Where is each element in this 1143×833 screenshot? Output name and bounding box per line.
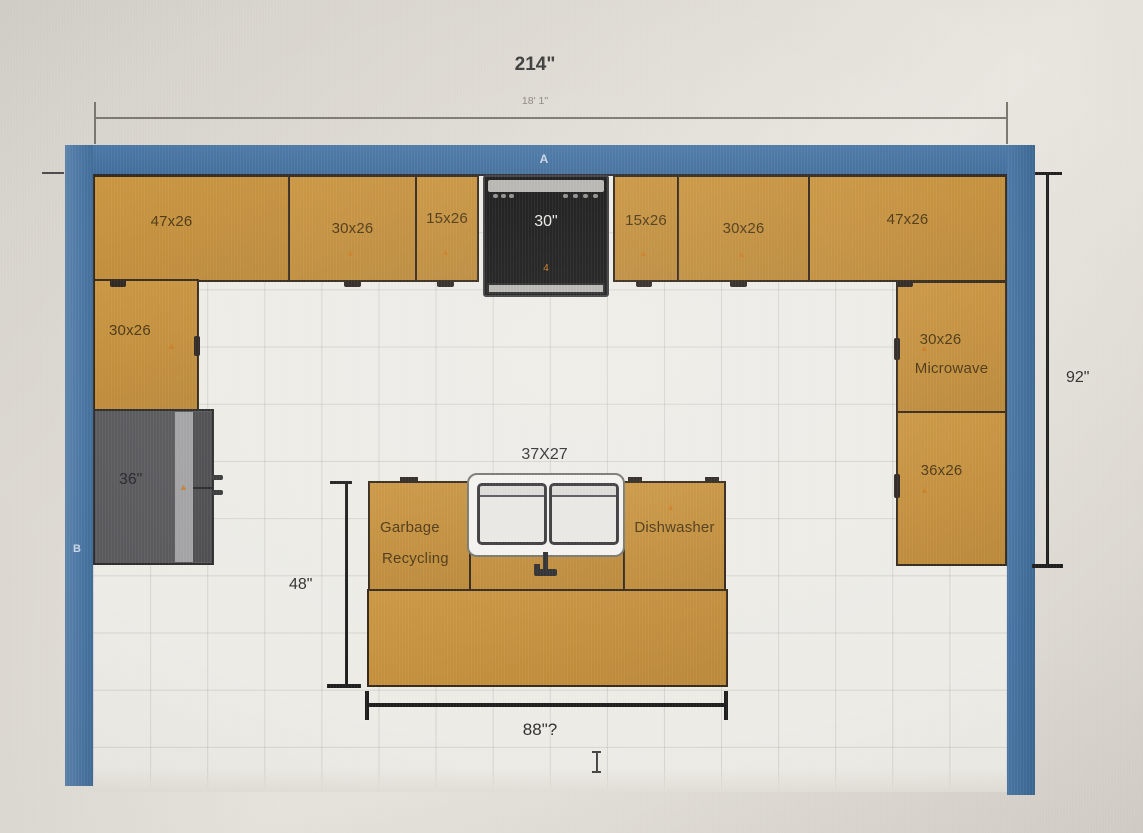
cabinet-label: 47x26 xyxy=(151,213,193,230)
dim-island-width: 88"? xyxy=(500,720,580,740)
fridge-handle xyxy=(212,490,223,495)
range-control-panel xyxy=(488,180,604,192)
door-handle xyxy=(705,477,719,482)
island-garbage-recycling-cabinet[interactable]: Garbage Recycling xyxy=(368,481,471,591)
fridge-width-label: 36" xyxy=(119,471,142,489)
fridge-door-split xyxy=(193,487,212,489)
cabinet-label: 15x26 xyxy=(426,210,468,227)
dim-tick-top-right xyxy=(1006,102,1008,144)
range-30in[interactable]: 30" 4 xyxy=(483,175,609,297)
door-handle xyxy=(894,338,900,360)
item-marker: ▲ xyxy=(179,483,186,492)
sink-rim xyxy=(552,486,616,497)
range-knob-icon xyxy=(509,194,514,198)
garbage-label: Garbage xyxy=(380,519,440,536)
dim-tick-right-top xyxy=(1035,172,1062,175)
refrigerator[interactable]: 36" xyxy=(93,409,214,565)
item-marker: ▲ xyxy=(441,248,448,257)
door-handle xyxy=(400,477,418,483)
wall-right[interactable] xyxy=(1007,145,1035,795)
cabinet-label: 30x26 xyxy=(109,322,151,339)
cabinet-label: 47x26 xyxy=(887,211,929,228)
dim-tick-island-depth-top xyxy=(330,481,352,484)
dim-tick-right-bottom xyxy=(1032,564,1063,568)
fridge-handle xyxy=(212,475,223,480)
range-size-label: 30" xyxy=(485,213,607,231)
microwave-label: Microwave xyxy=(915,360,988,377)
range-knob-icon xyxy=(493,194,498,198)
range-knob-icon xyxy=(583,194,588,198)
sink-basin-left xyxy=(477,483,547,545)
door-handle xyxy=(437,281,454,287)
dim-sink-size: 37X27 xyxy=(487,446,602,464)
item-marker: ▲ xyxy=(920,344,927,353)
cabinet-label: 30x26 xyxy=(723,220,765,237)
door-handle xyxy=(636,281,652,287)
text-cursor-icon xyxy=(590,751,603,773)
door-handle xyxy=(730,281,747,287)
item-marker: ▲ xyxy=(666,503,673,512)
door-handle xyxy=(110,281,126,287)
cabinet-top-15x26-right[interactable]: 15x26 xyxy=(613,175,679,282)
cabinet-top-15x26-left[interactable]: 15x26 xyxy=(415,175,479,282)
kitchen-plan-canvas: A B 214" 18' 1" 92" 47x26 30x26 15x26 15… xyxy=(0,0,1143,833)
cabinet-top-47x26-left[interactable]: 47x26 xyxy=(93,175,290,282)
wall-label-a: A xyxy=(536,152,552,166)
cabinet-label: 30x26 xyxy=(332,220,374,237)
dim-line-top xyxy=(95,117,1008,119)
cabinet-right-36x26[interactable]: 36x26 xyxy=(896,411,1007,566)
door-handle xyxy=(894,474,900,498)
wall-left[interactable] xyxy=(65,145,93,786)
cabinet-top-47x26-right[interactable]: 47x26 xyxy=(808,175,1007,282)
dim-line-right xyxy=(1046,174,1049,567)
range-item-number: 4 xyxy=(485,263,607,274)
island-dishwasher[interactable]: Dishwasher xyxy=(623,481,726,591)
item-marker: ▲ xyxy=(167,342,174,351)
dishwasher-label: Dishwasher xyxy=(634,519,714,536)
dim-tick-island-depth-bottom xyxy=(327,684,361,688)
dim-tick-top-left xyxy=(94,102,96,144)
cabinet-label: 36x26 xyxy=(921,462,963,479)
dim-tick-island-width-left xyxy=(365,691,369,720)
door-handle xyxy=(194,336,200,356)
item-marker: ▲ xyxy=(639,249,646,258)
range-knob-icon xyxy=(563,194,568,198)
kitchen-sink[interactable] xyxy=(467,473,625,557)
range-knob-icon xyxy=(501,194,506,198)
cabinet-top-30x26-right[interactable]: 30x26 xyxy=(677,175,810,282)
dim-right-depth: 92" xyxy=(1066,369,1089,387)
cabinet-top-30x26-left[interactable]: 30x26 xyxy=(288,175,417,282)
item-marker: ▲ xyxy=(920,486,927,495)
dim-tick-island-width-right xyxy=(724,691,728,720)
item-marker: ▲ xyxy=(346,249,353,258)
dim-overall-width-feet: 18' 1" xyxy=(475,95,595,107)
door-handle xyxy=(896,281,913,287)
item-marker: ▲ xyxy=(737,250,744,259)
door-handle xyxy=(628,477,642,482)
sink-rim xyxy=(480,486,544,497)
floor-grid-fade xyxy=(93,768,1007,792)
island-base-cabinet[interactable] xyxy=(367,589,728,687)
recycling-label: Recycling xyxy=(382,550,449,567)
wall-label-b: B xyxy=(69,543,85,555)
cabinet-label: 15x26 xyxy=(625,212,667,229)
range-handle xyxy=(487,283,605,294)
dim-island-depth: 48" xyxy=(289,576,312,594)
cabinet-right-30x26-microwave[interactable]: 30x26 Microwave xyxy=(896,281,1007,413)
door-handle xyxy=(344,281,361,287)
range-knob-icon xyxy=(573,194,578,198)
sink-basin-right xyxy=(549,483,619,545)
range-knob-icon xyxy=(593,194,598,198)
dim-stub-left xyxy=(42,172,64,174)
faucet-icon xyxy=(533,552,559,576)
dim-overall-width-inches: 214" xyxy=(455,54,615,76)
dim-line-island-width xyxy=(366,703,728,707)
cabinet-left-30x26[interactable]: 30x26 xyxy=(93,279,199,411)
dim-line-island-depth xyxy=(345,482,348,688)
